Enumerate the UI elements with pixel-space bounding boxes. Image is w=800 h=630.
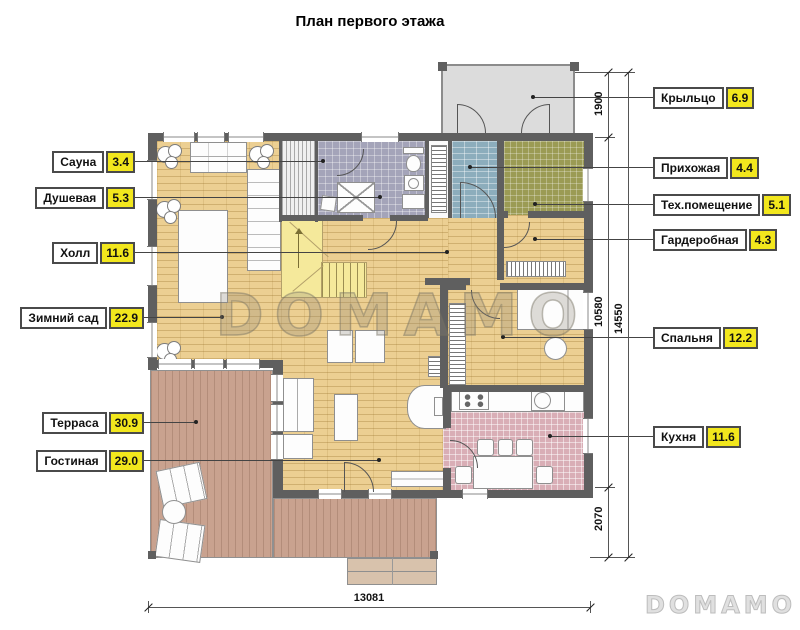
- page-title: План первого этажа: [240, 13, 500, 30]
- piano-bench: [434, 397, 443, 416]
- dim-line-segments: [608, 72, 609, 557]
- leader-kitchen: [550, 436, 653, 437]
- chair: [516, 439, 533, 456]
- door-kitchen-living: [450, 440, 478, 468]
- room-area: 4.3: [749, 229, 778, 251]
- leader-winter-garden: [144, 317, 222, 318]
- room-label-terrace: Терраса 30.9: [42, 412, 144, 434]
- wall-entry-tech: [497, 141, 504, 218]
- leader-shower: [135, 197, 380, 198]
- leader-dot: [533, 202, 537, 206]
- plant-icon: [157, 144, 185, 172]
- room-label-bedroom: Спальня 12.2: [653, 327, 758, 349]
- door-entry-hall: [460, 182, 496, 218]
- leader-dot: [378, 195, 382, 199]
- porch-post: [438, 62, 447, 71]
- coffee-table: [334, 394, 358, 441]
- window: [163, 132, 195, 142]
- leader-dot: [468, 165, 472, 169]
- room-area: 5.3: [106, 187, 135, 209]
- window: [147, 160, 157, 200]
- room-name: Сауна: [52, 151, 104, 173]
- window: [226, 359, 260, 369]
- dim-total-height: 14550: [613, 287, 625, 351]
- room-area: 11.6: [706, 426, 741, 448]
- porch-wall-left: [441, 64, 443, 133]
- wall-bath-bottom: [279, 215, 363, 221]
- room-label-tech: Тех.помещение 5.1: [653, 194, 791, 216]
- terrace-deck-bottom: [273, 498, 437, 558]
- leader-dot: [445, 250, 449, 254]
- leader-dot: [533, 237, 537, 241]
- door-leaf: [457, 104, 458, 133]
- door-leaf: [344, 462, 345, 492]
- stairs-up-arrow: [298, 232, 299, 268]
- toilet-bowl: [406, 155, 421, 172]
- living-sofa: [283, 434, 313, 459]
- room-label-winter-garden: Зимний сад 22.9: [20, 307, 144, 329]
- sideboard: [391, 471, 448, 487]
- room-area: 30.9: [109, 412, 144, 434]
- living-sofa: [283, 378, 314, 432]
- room-area: 3.4: [106, 151, 135, 173]
- stove: [459, 391, 489, 410]
- closet-hanger-rack: [431, 145, 447, 213]
- room-name: Гостиная: [36, 450, 106, 472]
- wardrobe-rack: [506, 261, 566, 277]
- leader-hall: [135, 252, 447, 253]
- kitchen-sink-bowl: [534, 392, 551, 409]
- room-label-porch: Крыльцо 6.9: [653, 87, 754, 109]
- room-label-wardrobe: Гардеробная 4.3: [653, 229, 777, 251]
- wall-closet-left: [425, 141, 429, 218]
- room-label-kitchen: Кухня 11.6: [653, 426, 741, 448]
- dim-total-width: 13081: [148, 592, 590, 604]
- room-area: 5.1: [762, 194, 791, 216]
- room-name: Прихожая: [653, 157, 728, 179]
- window: [361, 132, 399, 142]
- door-living-terrace: [344, 462, 374, 492]
- dim-porch-depth: 1900: [593, 78, 605, 130]
- wall-kitchen-living: [443, 468, 451, 498]
- floor-plan-canvas: План первого этажа: [0, 0, 800, 630]
- door-wardrobe: [504, 222, 530, 248]
- chair: [455, 466, 472, 484]
- vanity: [402, 194, 425, 209]
- window: [583, 168, 593, 202]
- wall-tech-bottom: [528, 211, 584, 218]
- wall-corridor-right: [497, 218, 504, 280]
- stairs-up-arrowhead: [295, 228, 303, 234]
- plant-icon: [156, 199, 184, 227]
- door-leaf: [460, 182, 461, 218]
- terrace-post: [148, 551, 156, 559]
- porch-wall-right: [573, 64, 575, 133]
- door-bathroom: [337, 149, 364, 176]
- room-name: Крыльцо: [653, 87, 724, 109]
- watermark-logo: DOMAMO: [645, 591, 795, 619]
- door-leaf: [549, 104, 550, 133]
- door-porch-right: [521, 104, 550, 133]
- leader-terrace: [144, 422, 196, 423]
- room-area: 29.0: [109, 450, 144, 472]
- room-label-entry: Прихожая 4.4: [653, 157, 759, 179]
- window: [271, 404, 283, 432]
- chair: [477, 439, 494, 456]
- sofa: [190, 142, 247, 173]
- room-area: 11.6: [100, 242, 135, 264]
- room-sauna: [282, 141, 315, 218]
- sink-bowl: [408, 178, 419, 189]
- step-divider: [392, 558, 393, 585]
- window: [462, 489, 488, 499]
- window: [318, 489, 342, 499]
- dim-line-width: [148, 607, 590, 608]
- plant-icon: [249, 144, 277, 172]
- room-name: Гардеробная: [653, 229, 747, 251]
- room-name: Зимний сад: [20, 307, 106, 329]
- window: [271, 434, 283, 460]
- leader-tech: [535, 204, 653, 205]
- leader-entry: [470, 167, 653, 168]
- window: [228, 132, 264, 142]
- leader-dot: [377, 458, 381, 462]
- wall-sauna-right: [315, 141, 318, 222]
- room-area: 12.2: [723, 327, 758, 349]
- dim-extension: [595, 137, 615, 138]
- wall-closet-right: [448, 141, 452, 218]
- window: [197, 132, 225, 142]
- room-label-living: Гостиная 29.0: [36, 450, 144, 472]
- terrace-post: [430, 551, 438, 559]
- leader-wardrobe: [535, 239, 653, 240]
- leader-sauna: [135, 161, 323, 162]
- dining-table: [473, 456, 533, 489]
- door-porch-left: [457, 104, 486, 133]
- wall-bedroom-bottom: [448, 385, 584, 392]
- terrace-table: [162, 500, 186, 524]
- leader-dot: [321, 159, 325, 163]
- chair: [536, 466, 553, 484]
- room-name: Холл: [52, 242, 98, 264]
- room-name: Кухня: [653, 426, 704, 448]
- lounge-chair: [155, 519, 206, 563]
- leader-dot: [531, 95, 535, 99]
- room-name: Терраса: [42, 412, 106, 434]
- room-area: 6.9: [726, 87, 755, 109]
- wall-kitchen-living: [443, 388, 451, 428]
- wall-sauna-left: [279, 141, 282, 222]
- dim-terrace-depth: 2070: [593, 494, 605, 544]
- room-label-hall: Холл 11.6: [52, 242, 135, 264]
- door-bath-hall: [368, 221, 397, 250]
- porch-wall-top: [441, 64, 575, 66]
- leader-dot: [548, 434, 552, 438]
- dim-line-total: [628, 72, 629, 557]
- leader-living: [144, 460, 379, 461]
- dim-extension: [595, 487, 615, 488]
- window: [271, 374, 283, 402]
- window: [194, 359, 224, 369]
- porch-post: [570, 62, 579, 71]
- room-area: 4.4: [730, 157, 759, 179]
- room-label-sauna: Сауна 3.4: [52, 151, 135, 173]
- dim-main-height: 10580: [593, 282, 605, 342]
- room-name: Спальня: [653, 327, 721, 349]
- toilet-tank: [403, 147, 424, 154]
- chair: [498, 439, 513, 456]
- window: [158, 359, 192, 369]
- room-name: Тех.помещение: [653, 194, 760, 216]
- room-area: 22.9: [109, 307, 144, 329]
- room-name: Душевая: [35, 187, 104, 209]
- wall-tech-bottom: [497, 211, 508, 218]
- watermark-center: DOMAMO: [212, 281, 592, 349]
- shelf-unit: [247, 169, 281, 271]
- room-label-shower: Душевая 5.3: [35, 187, 135, 209]
- leader-dot: [194, 420, 198, 424]
- window: [147, 322, 157, 358]
